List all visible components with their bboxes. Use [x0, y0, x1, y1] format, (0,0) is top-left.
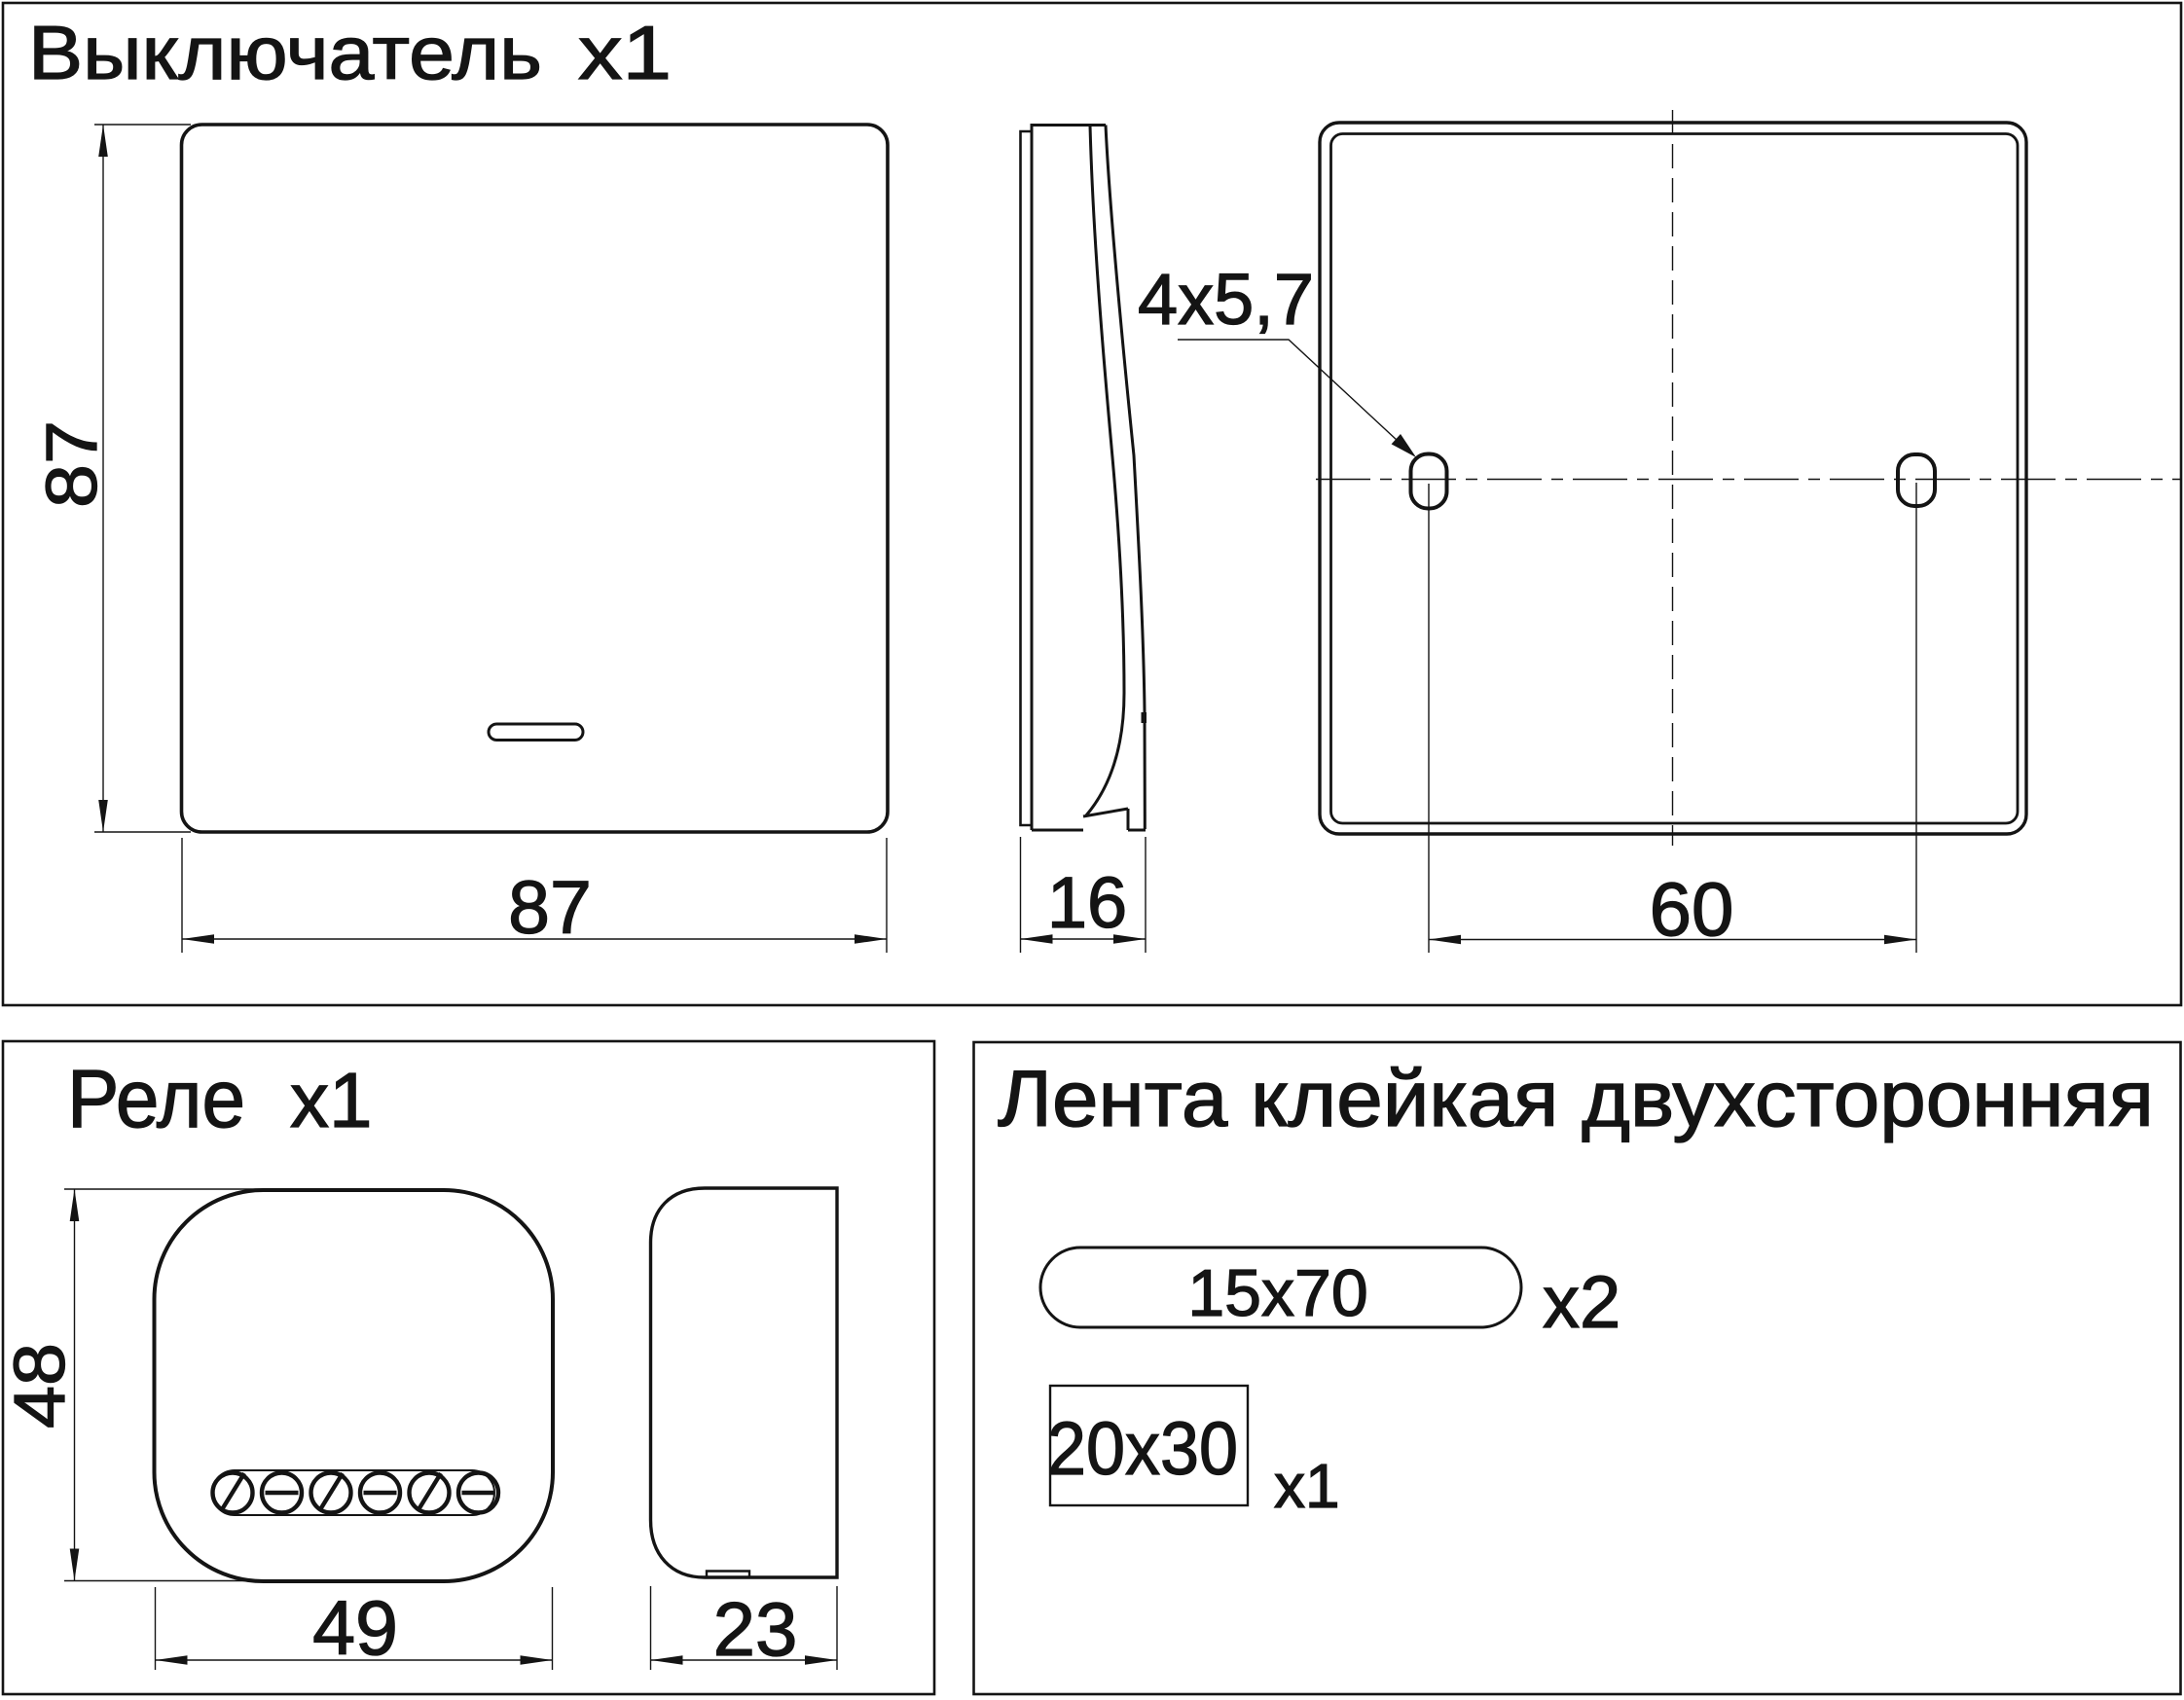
svg-text:49: 49	[312, 1584, 398, 1671]
svg-text:х1: х1	[1274, 1451, 1340, 1521]
svg-text:87: 87	[31, 420, 112, 508]
svg-text:87: 87	[508, 866, 592, 950]
svg-text:Выключатель: Выключатель	[28, 10, 542, 95]
svg-text:60: 60	[1650, 866, 1734, 952]
svg-text:23: 23	[713, 1586, 798, 1672]
svg-text:х1: х1	[290, 1057, 373, 1143]
svg-text:4х5,7: 4х5,7	[1138, 259, 1314, 340]
svg-text:15х70: 15х70	[1187, 1256, 1367, 1330]
svg-text:16: 16	[1047, 862, 1127, 943]
svg-text:х1: х1	[578, 10, 672, 95]
svg-text:48: 48	[0, 1343, 80, 1429]
svg-text:х2: х2	[1543, 1261, 1620, 1344]
svg-text:20х30: 20х30	[1047, 1407, 1238, 1491]
svg-text:Лента клейкая двухсторонняя: Лента клейкая двухсторонняя	[998, 1055, 2154, 1143]
svg-text:Реле: Реле	[67, 1053, 245, 1144]
